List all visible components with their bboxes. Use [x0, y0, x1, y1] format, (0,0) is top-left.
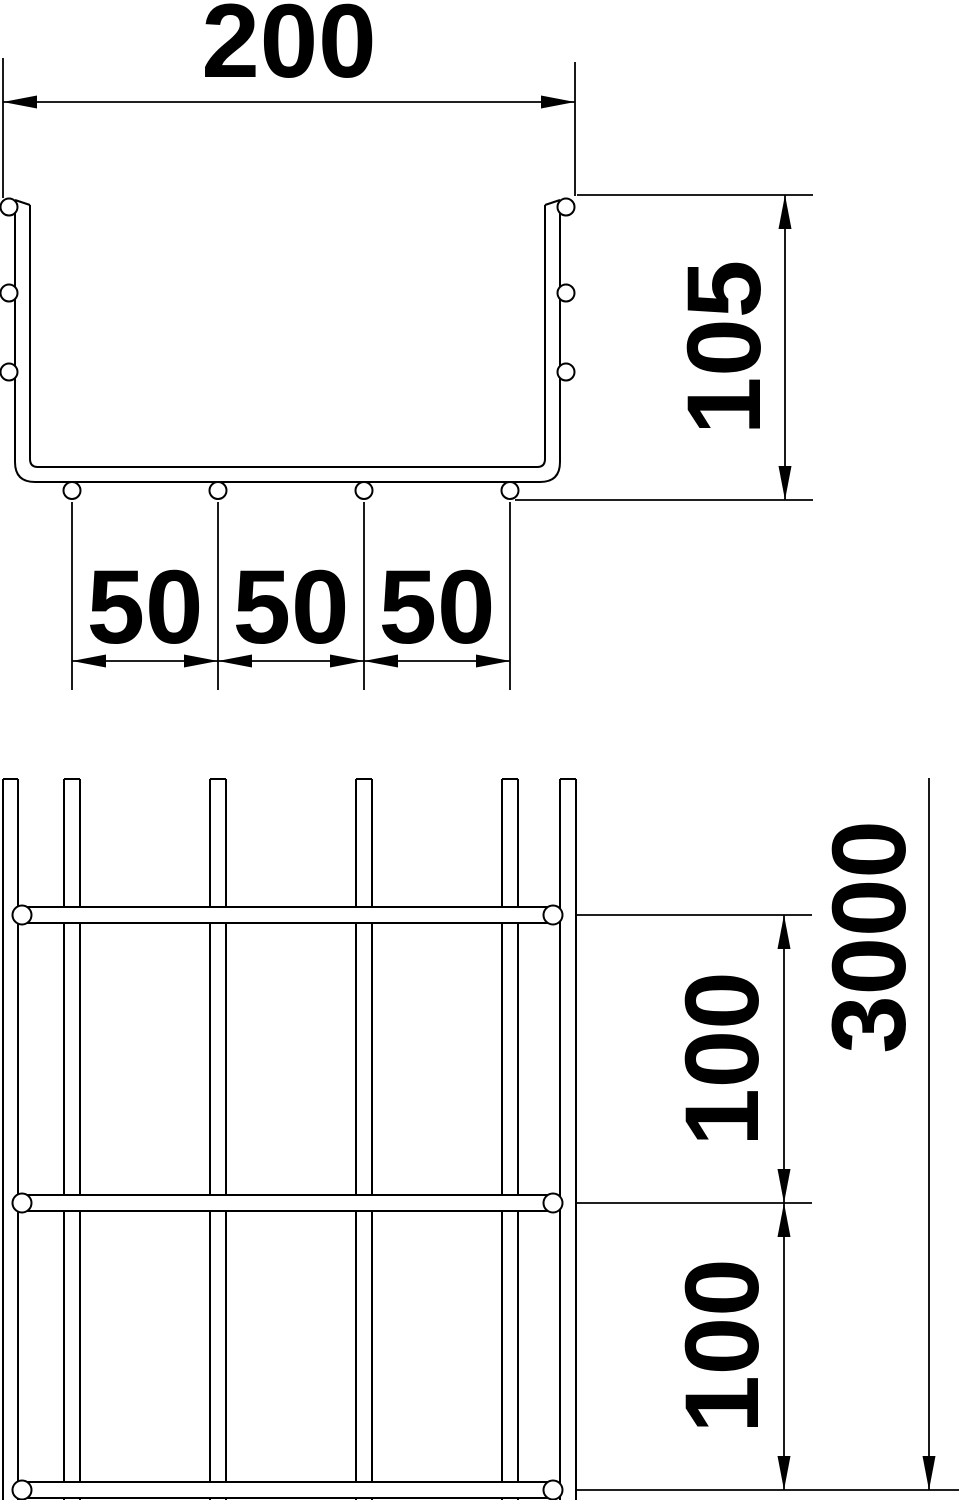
rung-end-cap	[544, 906, 563, 925]
cross-wire-rung-2	[13, 1194, 563, 1213]
rung-end-cap	[544, 1481, 563, 1500]
arrowhead-up-icon	[778, 915, 791, 949]
plan-view	[3, 779, 576, 1500]
bottom-wire-1	[64, 482, 81, 499]
arrowhead-down-icon	[923, 1456, 936, 1490]
bottom-wire-4	[502, 482, 519, 499]
arrowhead-up-icon	[779, 195, 792, 229]
right-wall-wire-top	[558, 199, 575, 216]
bottom-wire-3	[356, 482, 373, 499]
tray-inner-contour	[30, 205, 545, 467]
longitudinal-wire	[64, 779, 80, 1500]
longitudinal-wires	[3, 779, 576, 1500]
arrowhead-down-icon	[778, 1456, 791, 1490]
arrowhead-left-icon	[3, 96, 37, 109]
arrowhead-down-icon	[778, 1169, 791, 1203]
left-wall-wire-low	[1, 364, 18, 381]
dimension-label-spacing-3: 50	[379, 549, 496, 666]
rung-end-cap	[13, 906, 32, 925]
rung-end-cap	[13, 1194, 32, 1213]
longitudinal-wire	[502, 779, 518, 1500]
left-wall-wire-top	[1, 199, 18, 216]
rung-end-cap	[544, 1194, 563, 1213]
dimension-label-pitch-2: 100	[664, 1258, 781, 1433]
longitudinal-wire	[3, 779, 18, 1500]
cross-wire-rung-3	[13, 1481, 563, 1500]
dimension-label-pitch-1: 100	[664, 971, 781, 1146]
right-wall-wire-low	[558, 364, 575, 381]
longitudinal-wire	[560, 779, 576, 1500]
arrowhead-down-icon	[779, 466, 792, 500]
technical-drawing-sheet: 200 105 50 50 50	[0, 0, 959, 1500]
dimension-outer-width: 200	[3, 0, 575, 198]
dimension-label-height: 105	[666, 260, 783, 435]
rung-end-cap	[13, 1481, 32, 1500]
bottom-wire-2	[210, 482, 227, 499]
arrowhead-right-icon	[541, 96, 575, 109]
longitudinal-wire	[356, 779, 372, 1500]
tray-outer-contour	[15, 200, 560, 482]
dimension-label-spacing-1: 50	[87, 549, 204, 666]
dimension-label-width: 200	[201, 0, 376, 100]
arrowhead-up-icon	[778, 1203, 791, 1237]
dimension-label-spacing-2: 50	[233, 549, 350, 666]
dimension-label-length: 3000	[811, 820, 928, 1054]
cross-wire-rung-1	[13, 906, 563, 925]
longitudinal-wire	[210, 779, 226, 1500]
right-wall-wire-mid	[558, 285, 575, 302]
cross-section-view	[1, 199, 575, 500]
left-wall-wire-mid	[1, 285, 18, 302]
mesh-tray-drawing: 200 105 50 50 50	[0, 0, 959, 1500]
dimension-overall-length: 3000	[811, 778, 936, 1490]
dimension-wire-spacing: 50 50 50	[72, 502, 510, 690]
